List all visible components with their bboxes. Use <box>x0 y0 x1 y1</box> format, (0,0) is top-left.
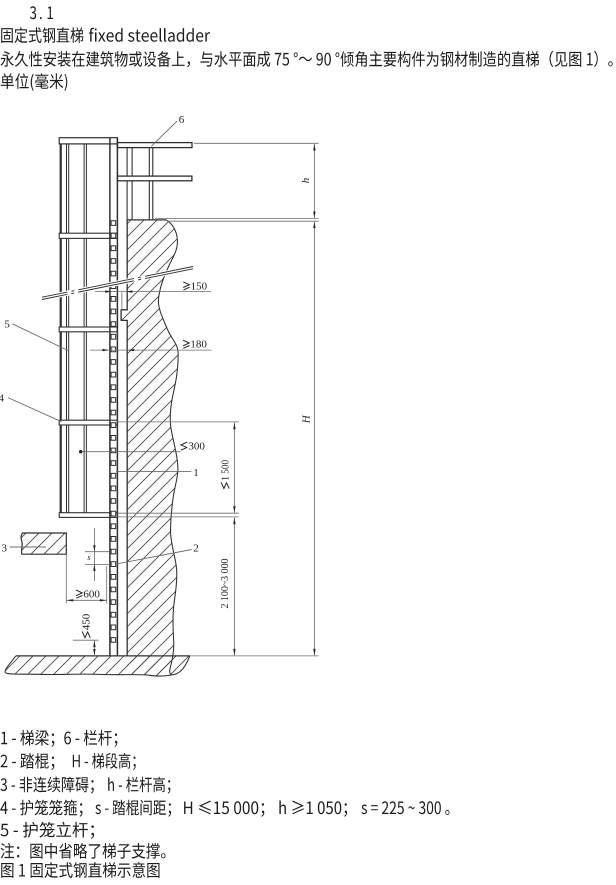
svg-text:300: 300 <box>188 441 205 453</box>
svg-text:180: 180 <box>190 339 207 351</box>
svg-text:3: 3 <box>2 542 8 554</box>
svg-text:4: 4 <box>0 392 5 404</box>
svg-text:h: h <box>300 177 312 183</box>
svg-text:450: 450 <box>81 613 93 630</box>
svg-text:1 500: 1 500 <box>220 459 232 480</box>
svg-text:H: H <box>300 414 312 424</box>
svg-text:1: 1 <box>193 467 199 479</box>
svg-text:s: s <box>87 553 90 562</box>
svg-text:600: 600 <box>83 589 100 601</box>
svg-text:6: 6 <box>179 114 185 126</box>
svg-text:5: 5 <box>4 318 10 330</box>
svg-text:2: 2 <box>193 542 199 554</box>
svg-text:150: 150 <box>191 280 208 292</box>
svg-text:2 100~3 000: 2 100~3 000 <box>219 558 231 608</box>
